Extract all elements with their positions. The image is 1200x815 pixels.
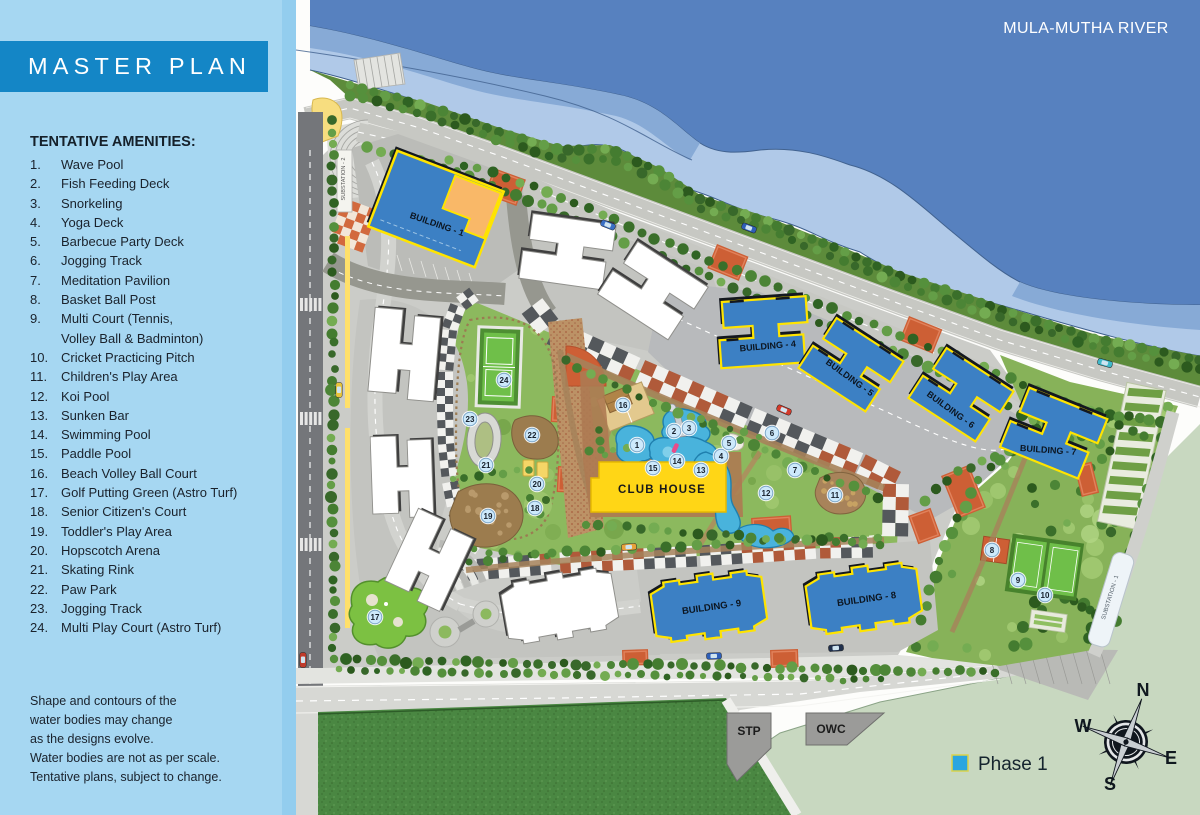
svg-text:S: S	[1104, 774, 1116, 794]
svg-text:21: 21	[482, 461, 491, 470]
svg-text:22: 22	[528, 431, 537, 440]
svg-text:11: 11	[831, 491, 840, 500]
svg-text:CLUB HOUSE: CLUB HOUSE	[618, 484, 706, 496]
svg-text:19: 19	[484, 512, 493, 521]
svg-text:E: E	[1165, 748, 1177, 768]
svg-text:6: 6	[770, 429, 775, 438]
svg-text:23: 23	[466, 415, 475, 424]
svg-text:12: 12	[762, 489, 771, 498]
svg-text:STP: STP	[737, 724, 760, 738]
svg-text:OWC: OWC	[816, 722, 846, 736]
svg-text:13: 13	[697, 466, 706, 475]
svg-text:SUBSTATION - 2: SUBSTATION - 2	[341, 158, 347, 201]
svg-text:14: 14	[673, 457, 682, 466]
svg-text:4: 4	[719, 452, 724, 461]
svg-text:2: 2	[672, 427, 677, 436]
svg-text:Phase 1: Phase 1	[978, 754, 1048, 775]
svg-text:3: 3	[687, 424, 692, 433]
svg-text:N: N	[1137, 680, 1150, 700]
svg-text:24: 24	[500, 376, 509, 385]
svg-text:15: 15	[649, 464, 658, 473]
svg-text:7: 7	[793, 466, 798, 475]
svg-text:10: 10	[1041, 591, 1050, 600]
svg-text:W: W	[1075, 716, 1092, 736]
svg-text:5: 5	[727, 439, 732, 448]
svg-text:9: 9	[1016, 576, 1021, 585]
svg-text:17: 17	[371, 613, 380, 622]
svg-text:8: 8	[990, 546, 995, 555]
svg-text:MULA-MUTHA RIVER: MULA-MUTHA RIVER	[1003, 20, 1169, 37]
svg-text:1: 1	[635, 441, 640, 450]
svg-text:20: 20	[533, 480, 542, 489]
svg-text:16: 16	[619, 401, 628, 410]
svg-text:18: 18	[531, 504, 540, 513]
